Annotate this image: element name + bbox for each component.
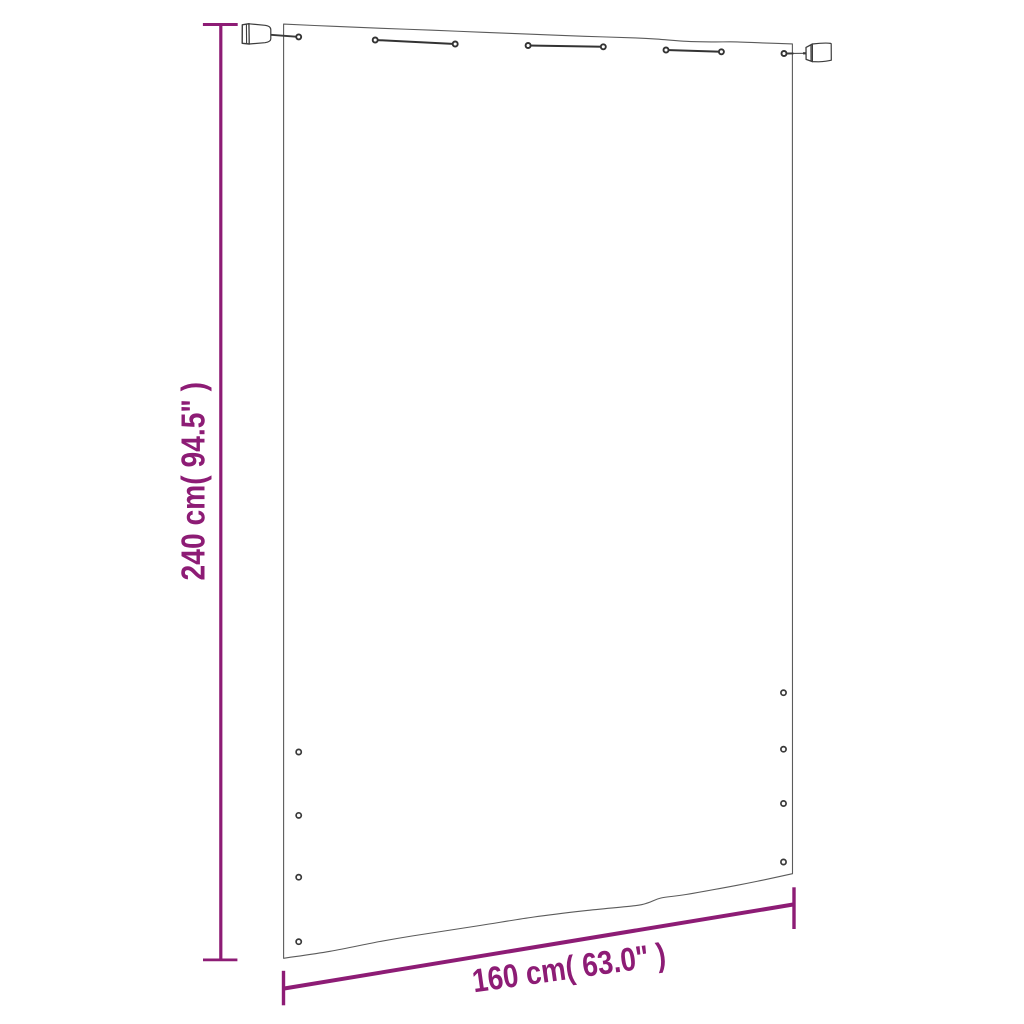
svg-text:240 cm( 94.5" ): 240 cm( 94.5" ) xyxy=(175,382,212,581)
svg-text:160 cm( 63.0" ): 160 cm( 63.0" ) xyxy=(470,936,668,1000)
